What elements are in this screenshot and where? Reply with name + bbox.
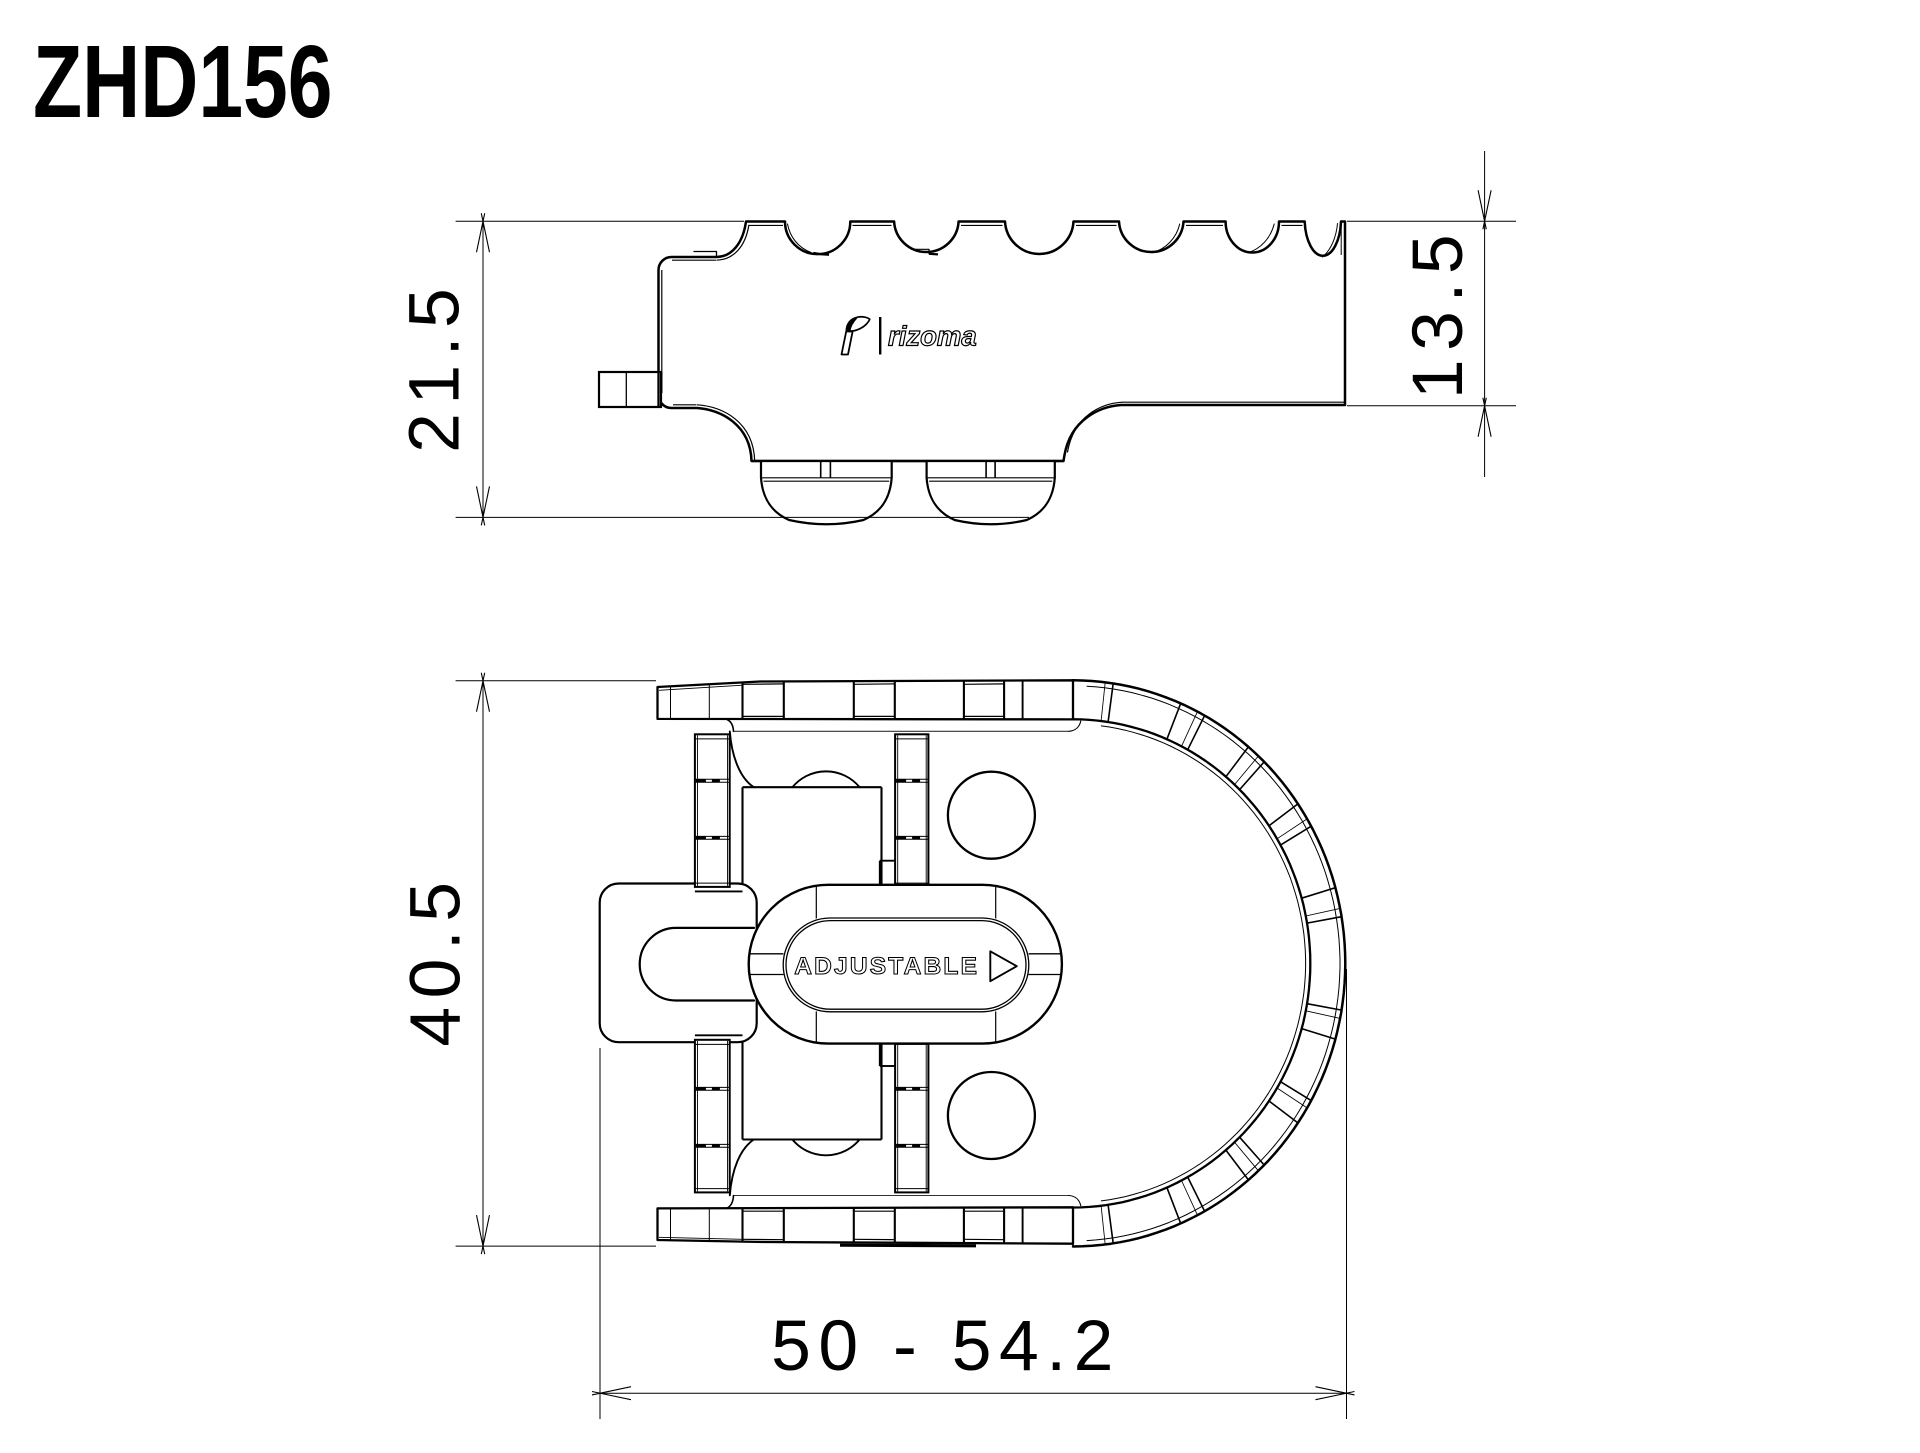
svg-text:21.5: 21.5 bbox=[395, 280, 475, 453]
svg-text:50 - 54.2: 50 - 54.2 bbox=[771, 1306, 1121, 1386]
svg-text:ADJUSTABLE: ADJUSTABLE bbox=[794, 953, 979, 980]
svg-text:40.5: 40.5 bbox=[396, 874, 476, 1047]
svg-text:ZHD156: ZHD156 bbox=[33, 23, 333, 139]
svg-text:13.5: 13.5 bbox=[1398, 226, 1478, 399]
svg-text:rizoma: rizoma bbox=[888, 321, 977, 352]
